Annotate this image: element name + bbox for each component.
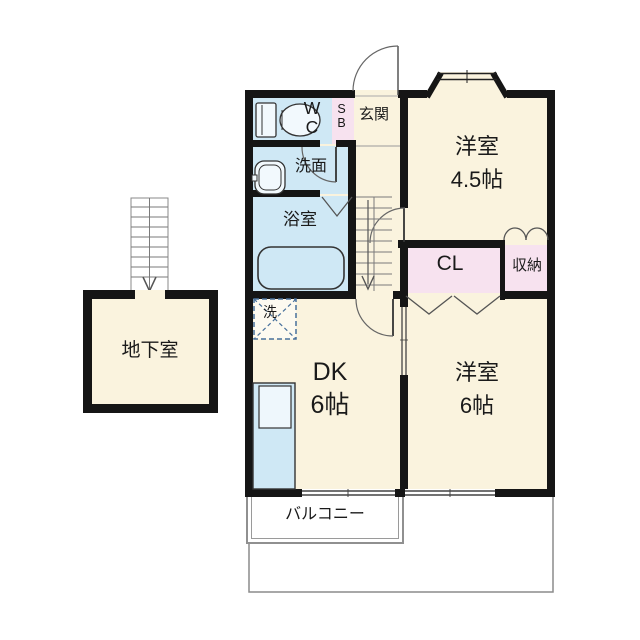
label-dk-name: DK: [280, 359, 380, 386]
sink-icon: [252, 161, 285, 194]
label-washroom: 洗面: [288, 158, 334, 175]
label-room45-name: 洋室: [427, 135, 527, 159]
label-dk-size: 6帖: [280, 392, 380, 419]
basement-stairs: [131, 198, 168, 296]
sliding-partition: [400, 307, 408, 375]
room6-window: [405, 489, 495, 497]
label-laundry: 洗: [256, 305, 284, 320]
label-balcony: バルコニー: [252, 506, 398, 523]
label-entrance: 玄関: [351, 107, 397, 123]
label-room6-name: 洋室: [427, 361, 527, 385]
bay-window: [427, 70, 507, 98]
floorplan-drawing: [0, 0, 640, 640]
entrance-door: [353, 46, 398, 96]
label-wc: WC: [302, 99, 322, 137]
label-bathroom: 浴室: [272, 211, 328, 229]
label-storage: 収納: [504, 258, 550, 274]
label-shoe-box: SB: [334, 103, 349, 130]
dk-window: [302, 489, 395, 497]
label-room45-size: 4.5帖: [427, 168, 527, 192]
floorplan-canvas: WC SB 玄関 洗面 浴室 洋室 4.5帖 CL 収納 DK 6帖 洋室 6帖…: [0, 0, 640, 640]
label-basement: 地下室: [95, 341, 205, 362]
label-room6-size: 6帖: [427, 394, 527, 418]
label-closet: CL: [410, 253, 490, 276]
